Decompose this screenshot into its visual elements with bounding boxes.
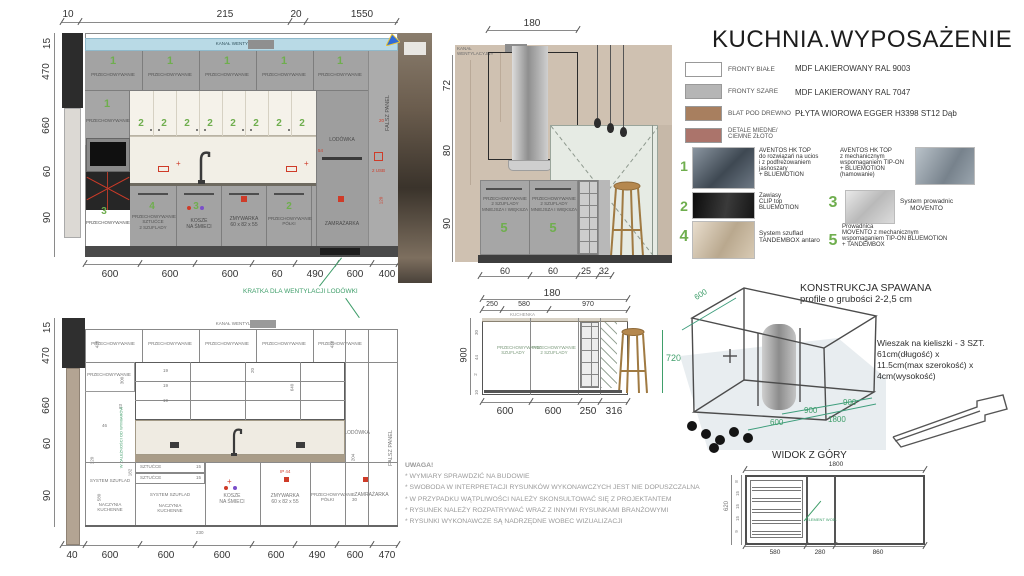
dim-label: 600 [268,550,285,561]
dim-label: 60 [42,438,53,449]
dim-label: 250 [580,406,597,417]
photo-tandembox [692,221,755,259]
cutlery-label: SZTUĆCE [140,464,161,469]
tall-panel-door [64,108,81,238]
cabinet-label: PRZECHOWYWANIE [259,341,309,346]
drawer-line [752,509,801,513]
notes-block: UWAGA! * WYMIARY SPRAWDZIĆ NA BUDOWIE * … [405,460,705,527]
callout-1: 1 [110,55,116,67]
divider [199,330,200,362]
pendant-lamp-icon [594,118,601,128]
legend-num-3: 3 [829,194,838,212]
top-view-title: WIDOK Z GÓRY [772,450,847,461]
cabinet-label: PRZECHOWYWANIE [86,220,128,225]
cabinet-label: PRZECHOWYWANIE [315,341,365,346]
door-divider [176,91,177,136]
dim-label: 80 [442,145,453,156]
faucet-icon [192,146,212,186]
dim-line [488,30,578,31]
outlet-mark [158,166,169,172]
dim-label: 90 [442,218,453,229]
dim-label: 180 [544,288,561,299]
divider [266,186,267,246]
callout-5: 5 [549,220,556,235]
dim-label: 60 [548,266,558,276]
hardware-text-2: Zawiasy CLIP top BLUEMOTION [759,193,799,211]
electric-cross: + [227,477,232,486]
red-socket [241,196,247,202]
plinth-line [484,390,622,393]
inner-dim: 19 [163,383,168,388]
hardware-text-3: System prowadnic MOVENTO [900,198,953,212]
red-dot [224,486,228,490]
dim-line [54,33,55,257]
dim-label: 400 [379,269,396,280]
bar-stool-icon [608,178,646,258]
inner-dim: 19 [163,398,168,403]
dim-label: 600 [347,269,364,280]
dim-label: 280 [815,549,826,556]
dim-line [62,545,398,546]
drawer-slit [274,193,304,195]
door-divider [291,91,292,136]
socket [296,442,305,448]
dim-label: 180 [524,18,541,29]
backsplash [130,136,316,186]
tick [922,466,927,473]
vent-grille [248,40,274,49]
dim-label: 60 [500,266,510,276]
cabinet-label: PRZECHOWYWANIE [88,72,138,77]
callout-2: 2 [286,201,292,212]
dim-label: 8 [734,480,739,483]
dim-label: 970 [582,301,594,308]
red-usb-mark: 2 USB [372,168,385,173]
photo-highlight [404,42,426,55]
fridge-vent-note: KRATKA DLA WENTYLACJI LODÓWKI [243,288,358,295]
dim-label: 15 [42,38,53,49]
inner-dim: 46 [102,423,107,428]
dim-label: 25 [581,266,591,276]
dim-label: 15 [42,322,53,333]
freezer-label: ZAMRAŻARKA [318,221,366,227]
dim-label: 40 [66,550,77,561]
dim-label: 15 [735,504,740,509]
drawer-slit [486,188,522,190]
callout-2: 2 [299,118,305,129]
dim-label: 600 [545,406,562,417]
inner-dim: 2 [473,373,478,376]
glass-hanger-note: Wieszak na kieliszki - 3 SZT. 61cm(długo… [877,338,995,382]
red-hatch [107,172,108,210]
false-panel-column [368,51,398,246]
dim-label: 620 [724,501,730,511]
dim-label: 660 [41,117,52,134]
dishwasher-label: ZMYWARKA 60 x 82 x 55 [222,216,266,229]
dim-label: 900 [843,398,856,407]
dim-label: 470 [41,63,52,80]
callout-2: 2 [207,118,213,129]
dim-label: 900 [804,406,817,415]
dim-label: 250 [486,301,498,308]
handle-dot [150,129,152,131]
shelf-line [190,362,191,420]
drawer-line [752,498,801,502]
red-dim: 120 [378,197,383,205]
dim-label: 10 [62,9,73,20]
dim-label: 470 [379,550,396,561]
dim-label: 490 [307,269,324,280]
bar-stool-icon [616,325,650,395]
callout-3: 3 [193,201,199,212]
dim-label: 600 [214,550,231,561]
inner-dim: 19 [163,368,168,373]
wall-column-dark [62,33,83,108]
cabinet-label: PRZECHOWYWANIE [145,72,195,77]
dim-label: 1800 [829,461,843,468]
cabinet-label: PRZECHOWYWANIE [145,341,195,346]
dim-line [482,310,628,311]
green-dim-line [662,330,663,393]
inner-dim: 580 [96,494,101,502]
note-line: * RYSUNKI WYKONAWCZE SĄ NADRZĘDNE WOBEC … [405,516,705,527]
inner-dim: 15 [196,464,201,469]
kitchenware-label: NACZYNIA KUCHENNE [136,503,204,514]
tall-panel-door [66,368,80,545]
dim-line [470,318,471,395]
pendant-stem [610,45,611,123]
callout-4: 4 [149,201,155,212]
inner-dim: 438 [94,341,99,349]
frame-3d-sketch [678,278,890,458]
handle-dot [204,129,206,131]
divider [256,330,257,362]
dim-label: 32 [599,266,609,276]
tick [609,272,614,279]
callout-1: 1 [167,55,173,67]
leader-line [345,298,360,318]
inner-dim: 182 [127,469,132,477]
dim-line [741,475,742,545]
photo-movento [845,190,895,224]
cooker-label: KUCHENKA [510,312,535,317]
inner-dim: 44 [474,355,479,360]
callout-2: 2 [230,118,236,129]
legend-num-2: 2 [680,198,688,214]
inner-dim: 30 [474,330,479,335]
material-desc: PŁYTA WIOROWA EGGER H3398 ST12 Dąb [795,109,957,118]
door-divider [222,91,223,136]
dim-label: 9 [734,530,739,533]
hardware-text-1b: AVENTOS HK TOP z mechanicznym wspomagani… [840,148,904,178]
dim-label: 580 [770,549,781,556]
dark-niche [86,172,130,210]
tick [625,398,630,405]
red-dot [187,206,191,210]
fridge-vent-grille [320,248,360,255]
legend-num-5: 5 [829,232,838,250]
shelf-line [300,362,301,420]
tick [394,18,399,25]
note-line: * SWOBODA W INTERPRETACJI RYSUNKÓW WYKON… [405,482,705,493]
dim-label: 660 [41,397,52,414]
dim-label: 20 [290,9,301,20]
drawer-system-label: SYSTEM SZUFLAD [86,478,134,483]
dim-label: 1800 [828,415,846,424]
dim-label: 60 [42,166,53,177]
callout-5: 5 [500,220,507,235]
dim-label: 15 [735,516,740,521]
shelf-line [245,362,246,420]
fridge-handle [322,157,362,160]
hood-cap [508,160,552,171]
handle-dot [196,129,198,131]
cooker-hood [512,46,548,162]
swatch-white [685,62,722,77]
photo-strip [398,33,432,283]
dim-label: 600 [102,550,119,561]
shelves-label: PRZECHOWYWANIE PÓŁKI [311,492,344,503]
legend-num-1: 1 [680,158,688,174]
inner-dim: 640 [289,384,294,392]
electric-cross: + [176,159,181,168]
dim-label: 1550 [351,9,373,20]
fridge-label: LODÓWKA [343,430,371,436]
callout-2: 2 [138,118,144,129]
callout-3: 3 [101,206,107,217]
note-line: * RYSUNEK NALEŻY ROZPATRYWAĆ WRAZ Z INNY… [405,505,705,516]
element-label: ELEMENT WOD. [806,517,837,522]
ip44-label: IP 44 [280,469,290,474]
divider [834,476,836,544]
inner-dim: 15 [196,475,201,480]
divider [142,330,143,362]
drawer-line [752,487,801,491]
red-socket [338,196,344,202]
dim-line [480,276,612,277]
floor-line [85,525,398,527]
pendant-lamp-icon [607,123,614,133]
divider [256,51,257,91]
drawer-slit [184,193,214,195]
dishwasher-label: ZMYWARKA 60 x 82 x 55 [261,493,309,506]
divider [806,476,808,544]
material-label: BLAT POD DREWNO [728,110,791,117]
dim-label: 90 [42,490,53,501]
cutlery-label: SZTUĆCE [140,475,161,480]
divider [176,186,177,246]
hanger-hatch [601,322,617,388]
dim-label: 15 [735,491,740,496]
tick [395,541,400,548]
bins-label: KOSZE NA ŚMIECI [206,493,258,506]
wine-rack [580,322,599,388]
oven-glass [90,142,126,166]
handle-dot [158,129,160,131]
dim-line [54,318,55,527]
cabinet-label: PRZECHOWYWANIE 2 SZUFLADY [532,345,576,356]
cabinet-label: PRZECHOWYWANIE 2 SZUFLADY MNIEJSZA I WIĘ… [531,196,577,212]
dim-line [482,299,628,300]
divider [142,51,143,91]
socket [170,442,179,448]
tick [625,306,630,313]
dim-label: 600 [347,550,364,561]
drawer-slit [535,188,571,190]
tick [625,295,630,302]
material-desc: MDF LAKIEROWANY RAL 9003 [795,64,910,73]
outlet-mark [286,166,297,172]
dim-label: 600 [102,269,119,280]
tick [575,26,580,33]
dim-label: 215 [217,9,234,20]
material-label: FRONTY SZARE [728,88,778,95]
dim-label: 470 [41,347,52,364]
callout-1: 1 [281,55,287,67]
material-desc: MDF LAKIEROWANY RAL 7047 [795,88,910,97]
shelves-label: PRZECHOWYWANIE PÓŁKI [268,216,310,227]
dim-label: 600 [222,269,239,280]
inner-dim: 120 [89,457,94,465]
wall-column-dark [62,318,85,368]
drawer-slit [229,193,259,195]
page-title: KUCHNIA.WYPOSAŻENIE [712,26,1012,54]
pendant-lamp-icon [620,127,627,137]
inner-dim: 10 [474,390,479,395]
dim-label: 900 [459,347,469,362]
pendant-stem [597,45,598,118]
cursor-arrow-icon [386,34,400,46]
swatch-gray [685,84,722,99]
false-panel-label: FALSZ PANEL [388,430,394,466]
glass-hanger-sketch [885,385,1020,450]
cabinet-label: PRZECHOWYWANIE [202,341,252,346]
pendant-stem [623,45,624,127]
hardware-text-5: Prowadnica MOVENTO z mechanicznym wspoma… [842,224,947,248]
door-divider [199,91,200,136]
callout-2: 2 [184,118,190,129]
faucet-icon [226,424,244,458]
note-line: * WYMIARY SPRAWDZIĆ NA BUDOWIE [405,471,705,482]
divider [529,180,530,255]
material-label: DETALE MIEDNE/ CIEMNE ZŁOTO [728,128,778,140]
false-panel-label: FALSZ PANEL [385,95,391,131]
divider [578,318,579,395]
drawer-line [752,531,801,535]
door-divider [268,91,269,136]
dim-line [731,475,732,545]
dim-label: 860 [873,549,884,556]
purple-dot [233,486,237,490]
glass-frame [652,125,653,262]
dim-line [85,264,398,265]
handle-dot [288,129,290,131]
vent-grille [250,320,276,328]
inner-dim: 300 [119,377,124,385]
divider [530,318,531,395]
green-annotation: W ZALEŻNOŚCI OD WYMIARÓW [118,407,123,469]
legend-num-4: 4 [680,228,689,246]
dim-label: 490 [309,550,326,561]
divider [313,330,314,362]
electric-cross: + [304,159,309,168]
wall-line [470,60,471,185]
dim-line [62,22,398,23]
dim-label: 90 [42,212,53,223]
cabinet-label: PRZECHOWYWANIE 2 SZUFLADY MNIEJSZA I WIĘ… [482,196,528,212]
inner-dim: 230 [196,530,204,535]
callout-2: 2 [161,118,167,129]
dim-line [745,470,925,471]
line [85,462,398,463]
callout-1: 1 [104,98,110,110]
dim-label: 600 [162,269,179,280]
cabinet-label: PRZECHOWYWANIE [259,72,309,77]
photo-clip-top [692,192,755,219]
wine-rack [578,180,598,255]
handle-dot [250,129,252,131]
shelf-line [135,381,345,382]
red-socket [363,477,368,482]
cabinet-label: PRZECHOWYWANIE [86,372,132,377]
door-divider [153,91,154,136]
divider [199,51,200,91]
note-line: * W PRZYPADKU WĄTPLIWOŚCI NALEŻY SKONSUL… [405,494,705,505]
kitchenware-label: NACZYNIA KUCHENNE [86,502,134,513]
dim-line [482,402,628,403]
dim-label: 600 [497,406,514,417]
inner-dim: 204 [350,454,355,462]
dim-label: 72 [442,80,453,91]
dim-label: 316 [606,406,623,417]
cabinet-label: PRZECHOWYWANIE [86,118,128,123]
inner-dim: 438 [329,341,334,349]
inner-dim: 20 [250,368,255,373]
purple-dot [200,206,204,210]
cabinet-label: PRZECHOWYWANIE SZTUĆCE 2 SZUFLADY [132,214,174,230]
material-label: FRONTY BIAŁE [728,66,775,73]
drawer-system-label: SYSTEM SZUFLAD [136,492,204,497]
callout-2: 2 [276,118,282,129]
fridge-label: LODÓWKA [318,137,366,143]
dim-label: 60 [271,269,282,280]
freezer-label: ZAMRAŻARKA [346,492,397,498]
cabinet-label: PRZECHOWYWANIE [315,72,365,77]
drawer-slit [138,193,168,195]
handle-dot [242,129,244,131]
hardware-text-1: AVENTOS HK TOP do rozwiązań na ucios i z… [759,148,818,178]
swatch-copper [685,128,722,143]
photo-aventos-tipon [915,147,975,185]
door-divider [245,91,246,136]
callout-1: 1 [224,55,230,67]
dim-label: 580 [518,301,530,308]
drawer-line [752,520,801,524]
cabinet-label: PRZECHOWYWANIE [202,72,252,77]
hardware-text-4: System szuflad TANDEMBOX antaro [759,230,820,244]
dim-label: 600 [770,418,783,427]
red-dim: 54 [318,148,323,153]
bins-label: KOSZE NA ŚMIECI [178,218,220,231]
photo-aventos [692,147,755,189]
swatch-wood [685,106,722,121]
red-socket [284,477,289,482]
red-socket-mark [374,152,383,161]
red-dim: 20 [379,118,384,123]
wall-edge [658,125,672,262]
plinth [478,255,672,263]
divider [313,51,314,91]
